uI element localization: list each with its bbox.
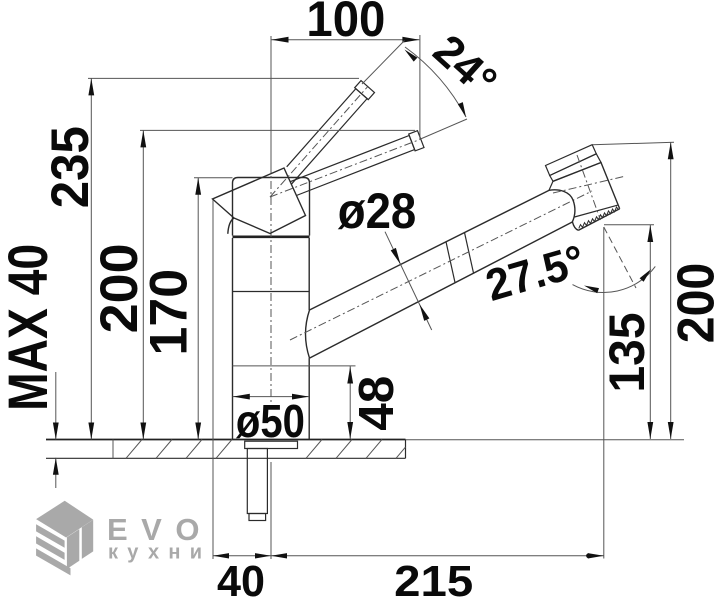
svg-text:235: 235 [41, 126, 100, 208]
svg-text:40: 40 [217, 558, 265, 600]
svg-text:170: 170 [140, 269, 199, 356]
svg-text:MAX 40: MAX 40 [0, 244, 59, 411]
svg-text:ø28: ø28 [338, 183, 417, 239]
svg-text:135: 135 [599, 313, 655, 393]
svg-text:100: 100 [306, 0, 385, 47]
svg-text:215: 215 [394, 558, 473, 600]
svg-text:48: 48 [350, 376, 404, 431]
svg-text:ø50: ø50 [236, 395, 305, 447]
svg-text:200: 200 [667, 263, 724, 344]
svg-text:кухни: кухни [108, 542, 211, 564]
